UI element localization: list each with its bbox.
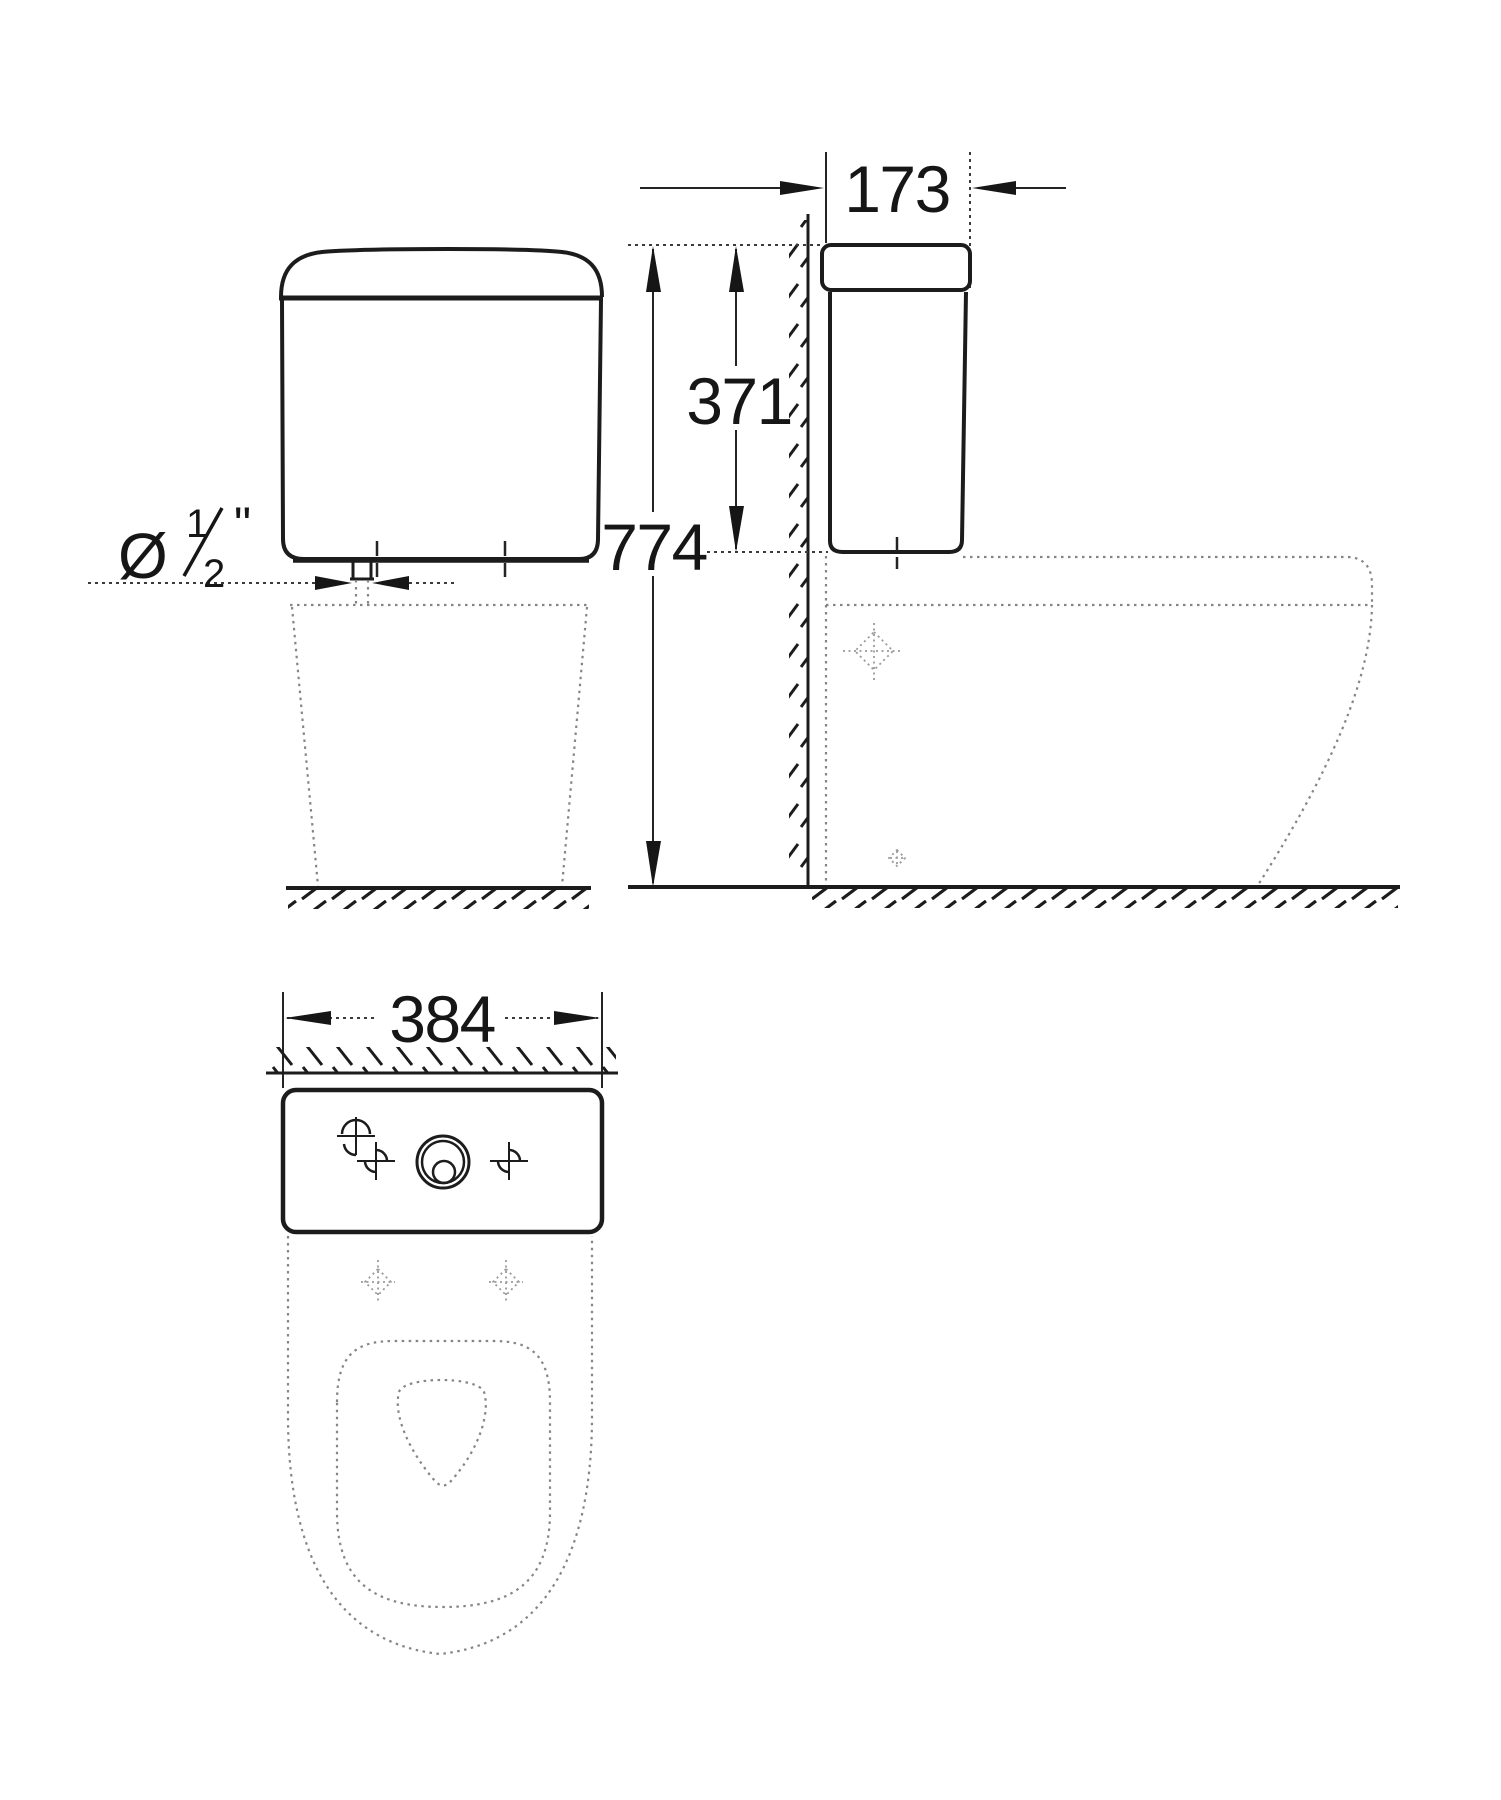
small-fixing-marker-icon	[889, 850, 905, 866]
bowl-plan-outer-hidden	[288, 1236, 592, 1654]
bowl-opening-hidden	[398, 1380, 486, 1486]
arrowhead-down-icon	[646, 841, 661, 887]
inlet-pipe-stub	[350, 561, 374, 579]
seat-top-hidden	[963, 557, 1372, 603]
cistern-dimension-drawing: Ø 1 2 " 173	[0, 0, 1501, 1800]
bowl-back-curve-hidden	[1258, 605, 1372, 885]
front-view: Ø 1 2 "	[88, 249, 603, 909]
wall-hatch-top-view	[270, 1047, 616, 1072]
arrowhead-down-icon	[729, 506, 744, 552]
bowl-hidden-left	[292, 607, 318, 886]
dimension-371: 371	[686, 246, 792, 552]
side-view: 173 774 371	[601, 152, 1400, 908]
cistern-body-front	[282, 300, 601, 559]
arrowhead-right-icon	[554, 1011, 600, 1025]
hinge-marker-icon	[361, 1260, 395, 1304]
dimension-774: 774	[601, 246, 707, 887]
dimension-inlet: Ø 1 2 "	[88, 499, 456, 596]
dimension-width-value: 384	[389, 982, 495, 1056]
hinge-marker-icon	[489, 1260, 523, 1304]
inlet-unit-inch-marks: "	[234, 499, 251, 552]
inlet-diameter-symbol: Ø	[118, 520, 168, 592]
inlet-pipe-hidden	[356, 580, 368, 606]
dimension-depth-value: 173	[844, 152, 950, 226]
top-view: 384	[266, 982, 618, 1654]
floor-hatch-side	[812, 889, 1398, 908]
arrowhead-left-icon	[285, 1011, 331, 1025]
cistern-lid-side	[822, 245, 970, 290]
cistern-body-side	[830, 292, 966, 552]
fixing-hole-icon	[490, 1142, 528, 1180]
dimension-cistern-height-value: 371	[686, 364, 792, 438]
technical-drawing-page: Ø 1 2 " 173	[0, 0, 1501, 1800]
bowl-hidden-right	[562, 607, 587, 886]
water-inlet-icon	[337, 1117, 375, 1155]
inlet-fraction-denominator: 2	[203, 552, 225, 596]
arrowhead-left-icon	[972, 181, 1016, 195]
flush-valve-icon	[417, 1136, 469, 1188]
arrowhead-up-icon	[646, 246, 661, 292]
dimension-173: 173	[640, 152, 1066, 292]
hinge-fixing-marker-icon	[843, 623, 903, 681]
arrowhead-left-icon	[372, 576, 409, 590]
cistern-lid-front	[281, 249, 602, 297]
floor-hatch-front	[288, 890, 589, 909]
fixing-hole-icon	[357, 1142, 395, 1180]
dimension-total-height-value: 774	[601, 510, 707, 584]
arrowhead-up-icon	[729, 246, 744, 292]
seat-plan-hidden	[337, 1341, 550, 1607]
arrowhead-right-icon	[780, 181, 824, 195]
arrowhead-right-icon	[315, 576, 352, 590]
